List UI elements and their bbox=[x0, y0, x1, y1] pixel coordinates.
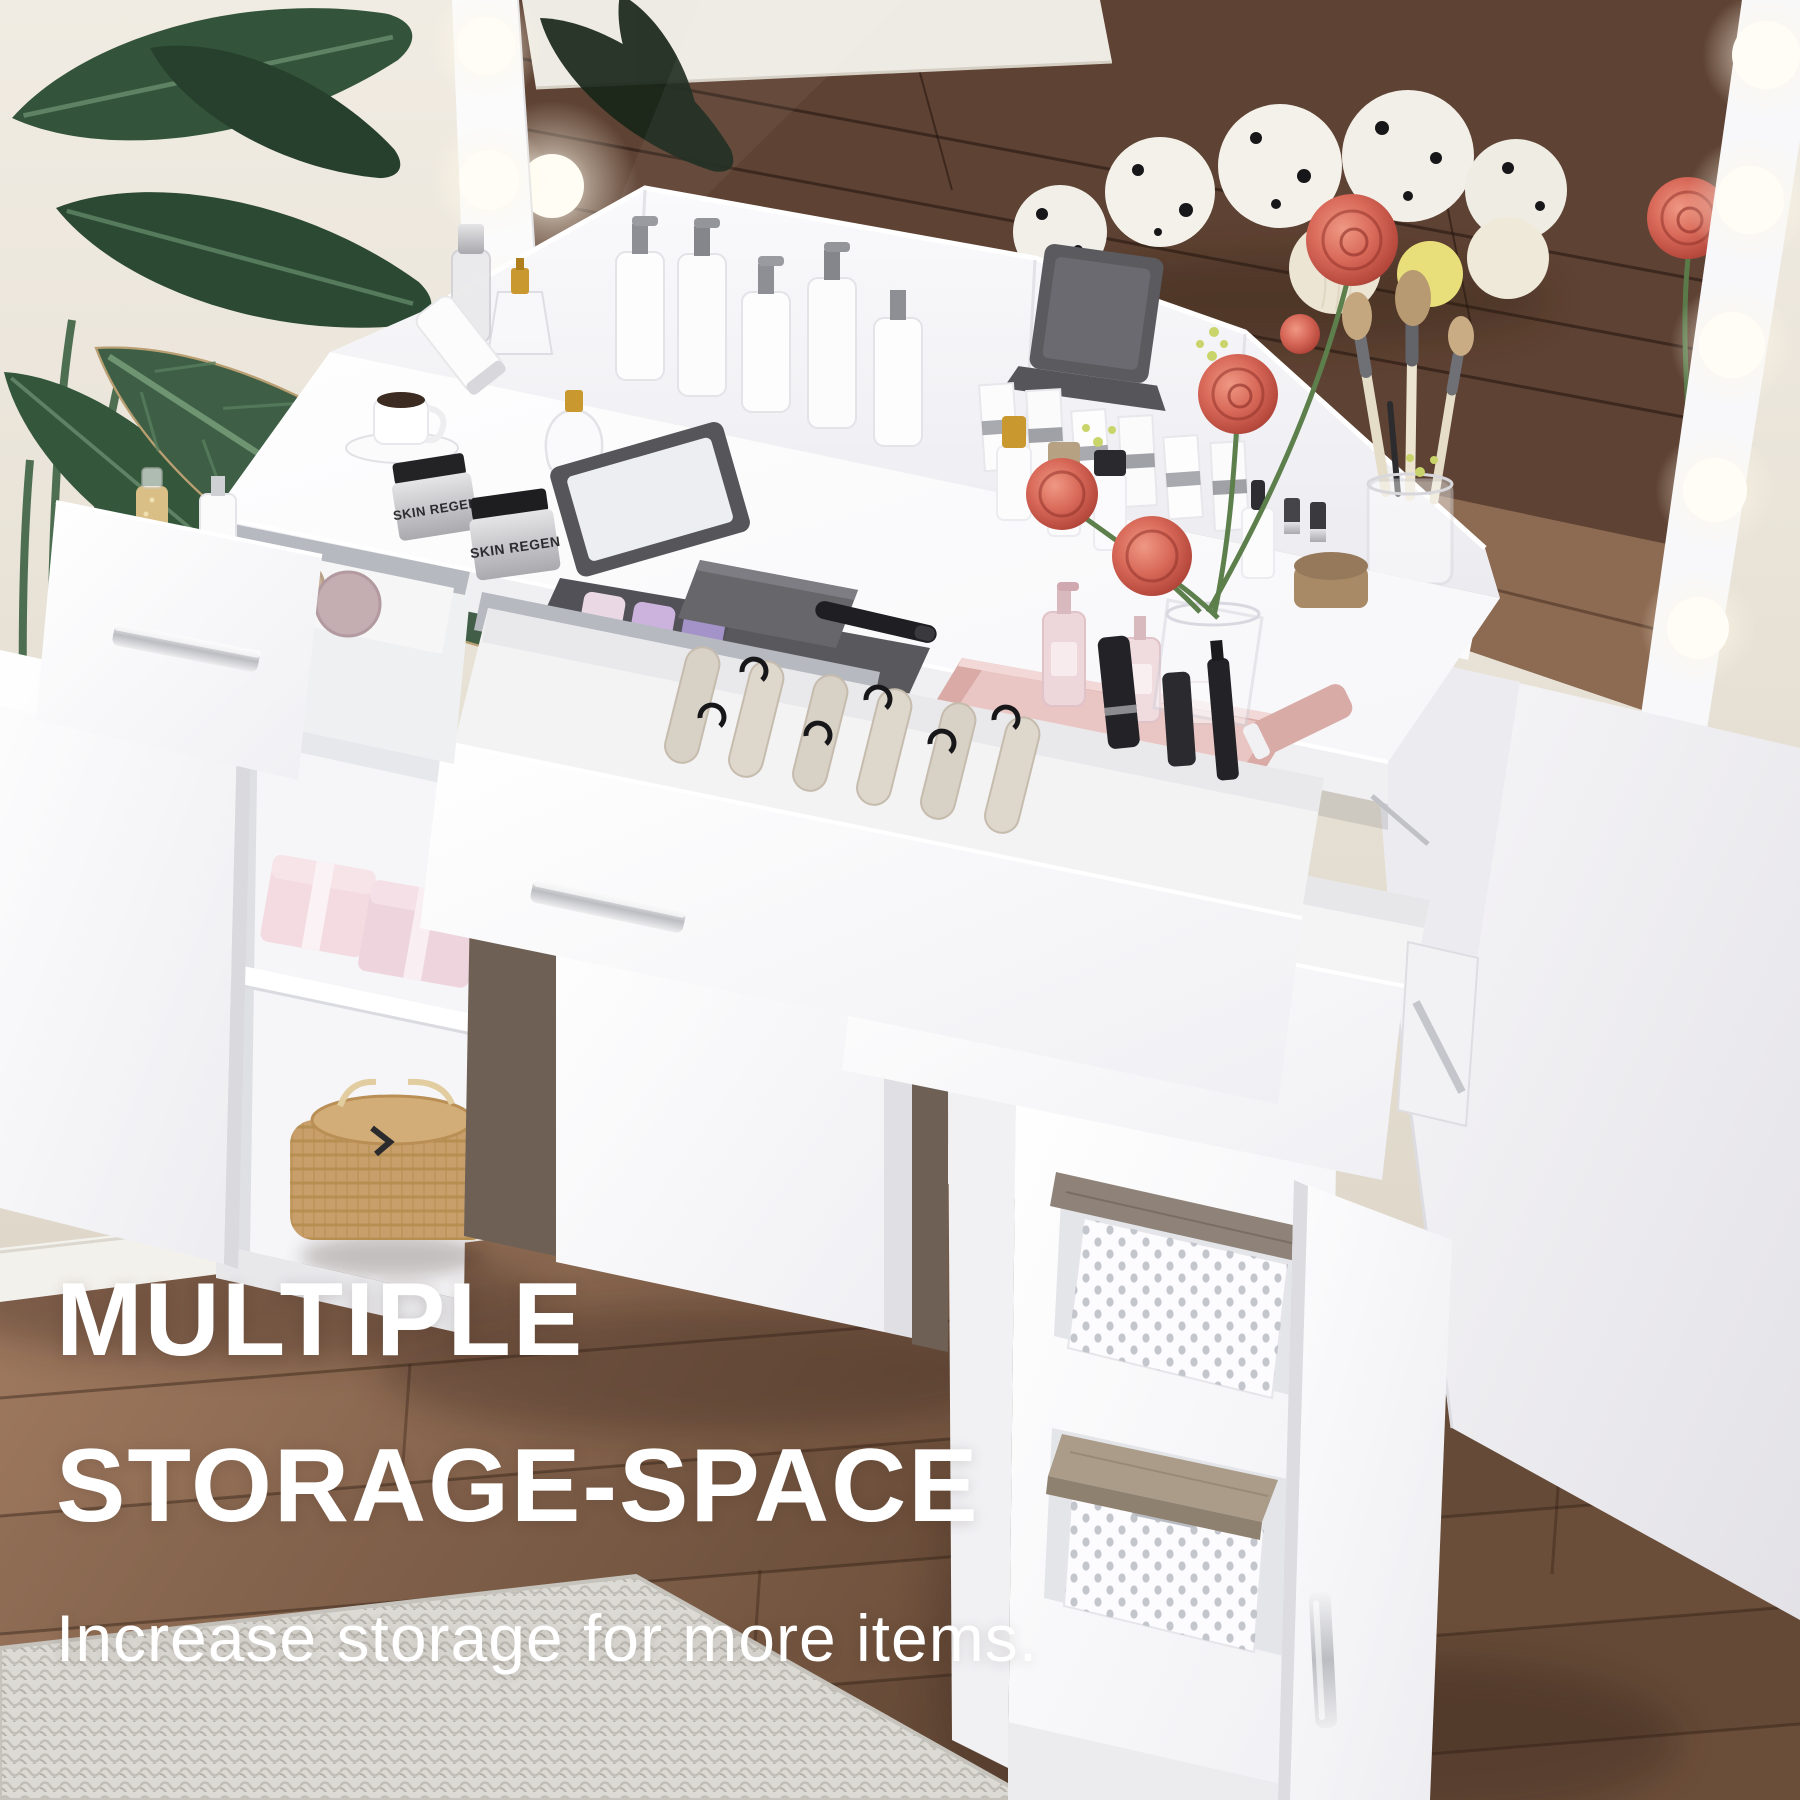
right-cabinet-door-open bbox=[1278, 1180, 1452, 1800]
led-bulb-icon bbox=[1699, 312, 1765, 378]
brown-cream-jar bbox=[1294, 552, 1368, 608]
led-bulb-icon bbox=[1683, 458, 1747, 522]
led-bulb-icon bbox=[1667, 597, 1729, 659]
headline-line-1: MULTIPLE bbox=[56, 1268, 1038, 1372]
headline-line-2: STORAGE-SPACE bbox=[56, 1434, 1038, 1538]
marketing-copy: MULTIPLE STORAGE-SPACE Increase storage … bbox=[56, 1268, 1038, 1676]
led-bulb-icon bbox=[459, 150, 519, 210]
product-marketing-image: { "overlay": { "headline_line1": "MULTIP… bbox=[0, 0, 1800, 1800]
wicker-basket bbox=[290, 1082, 494, 1278]
subtitle: Increase storage for more items. bbox=[56, 1600, 1038, 1676]
led-bulb-icon bbox=[457, 17, 515, 75]
led-bulb-icon bbox=[1716, 166, 1784, 234]
led-bulb-icon bbox=[1732, 21, 1800, 89]
drawer-slide-rail bbox=[1398, 942, 1478, 1126]
powder-compact-mauve bbox=[316, 572, 380, 636]
